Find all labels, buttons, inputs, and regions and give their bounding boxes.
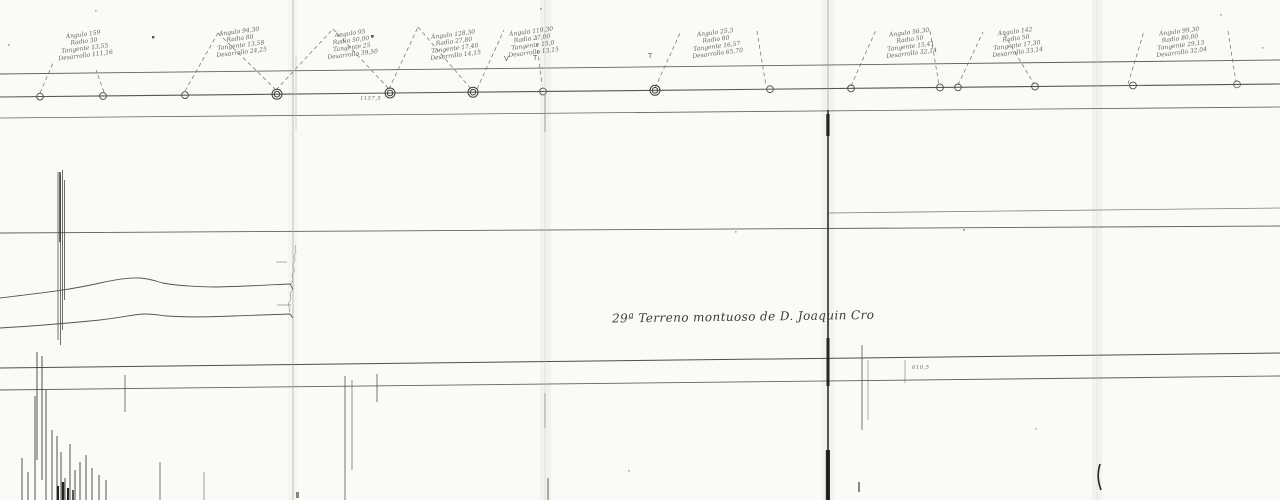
- fold-crease-lines: [293, 0, 1097, 500]
- fold-smudge-bands: [288, 0, 1102, 500]
- ink-specks: [8, 8, 1264, 498]
- bottom-scattered-strokes: [125, 345, 1101, 500]
- terrain-contour-curves: [0, 278, 293, 328]
- tangent-mark-t: T: [648, 52, 652, 60]
- horizontal-rule-lines: [0, 60, 1280, 390]
- tangent-mark-v: V: [504, 55, 509, 63]
- scanned-plan-sheet: Ángulo 159 Radio 30 Tangente 13,55 Desar…: [0, 0, 1280, 500]
- elevation-note: 610,5: [912, 365, 929, 371]
- tangent-mark-t: T: [533, 54, 537, 62]
- station-distance-note: 1157,5: [360, 96, 381, 102]
- profile-pole-strokes: [58, 170, 65, 345]
- bottom-hatch-strokes: [22, 352, 106, 500]
- plan-linework: [0, 0, 1280, 500]
